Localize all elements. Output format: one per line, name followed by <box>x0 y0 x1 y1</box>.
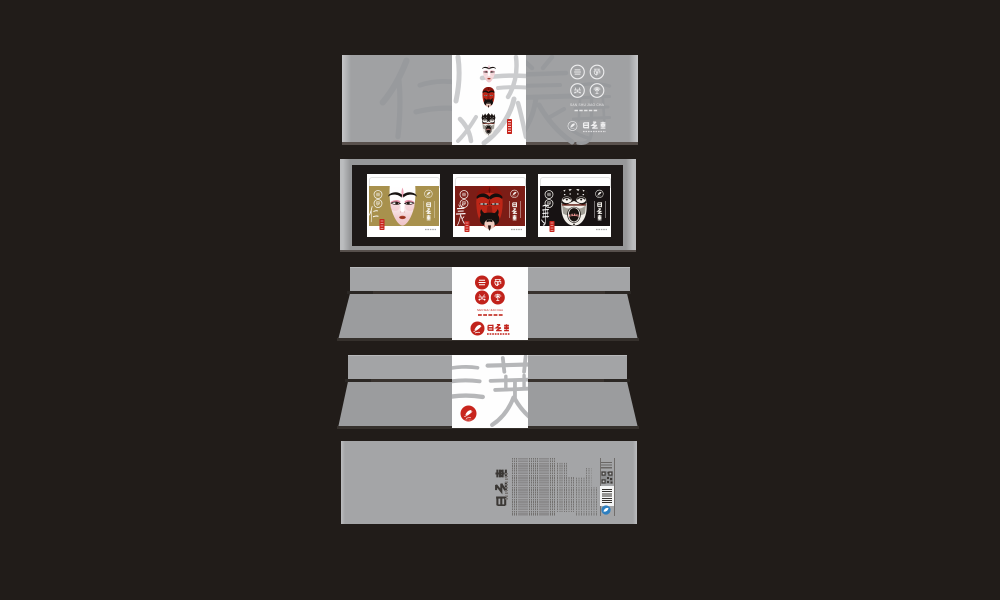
svg-text:SAN SHU JIAO CHA: SAN SHU JIAO CHA <box>477 308 503 312</box>
svg-text:SAN SHU JIAO CHA: SAN SHU JIAO CHA <box>570 103 605 107</box>
